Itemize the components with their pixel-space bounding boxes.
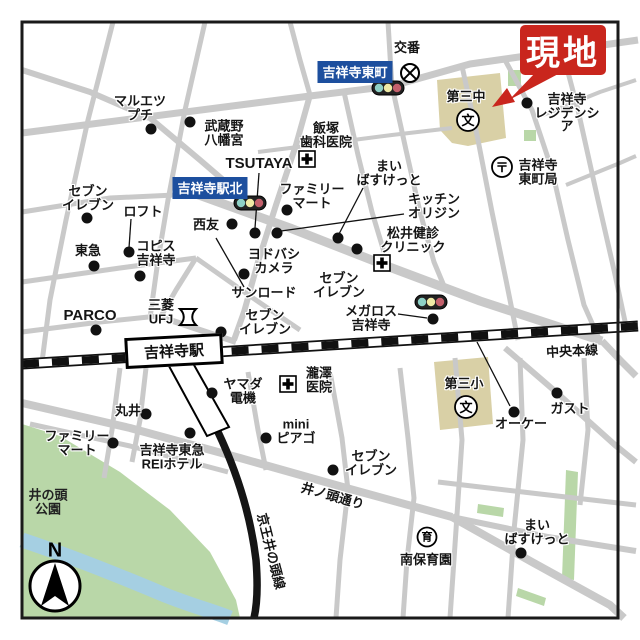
compass — [30, 561, 80, 611]
poi-dot — [141, 409, 152, 420]
poi-dot — [89, 261, 100, 272]
traffic-light-icon — [427, 298, 435, 306]
traffic-light-icon — [375, 84, 383, 92]
poi-dot — [509, 407, 520, 418]
poi-leader-line — [477, 342, 510, 406]
hospital-icon — [305, 154, 309, 165]
school-icon: 文 — [459, 400, 473, 415]
traffic-light-icon — [393, 84, 401, 92]
school-icon: 文 — [461, 113, 475, 128]
poi-dot — [146, 124, 157, 135]
hospital-icon — [286, 379, 290, 390]
poi-leader-line — [129, 219, 131, 248]
post-icon: 〒 — [495, 160, 508, 175]
poi-dot — [272, 228, 283, 239]
poi-leader-line — [398, 314, 427, 318]
poi-dot — [328, 465, 339, 476]
poi-dot — [333, 233, 344, 244]
bank-icon — [180, 309, 196, 325]
poi-leader-line — [339, 188, 363, 234]
site-arrow-icon — [492, 88, 515, 107]
poi-dot — [352, 244, 363, 255]
traffic-light-icon — [246, 199, 254, 207]
poi-dot — [282, 205, 293, 216]
hospital-icon — [380, 258, 384, 269]
poi-dot — [82, 213, 93, 224]
poi-dot — [185, 117, 196, 128]
poi-dot — [261, 433, 272, 444]
poi-dot — [91, 325, 102, 336]
map-overlay: 文〒文育 — [0, 0, 640, 640]
poi-dot — [250, 228, 261, 239]
traffic-light-icon — [436, 298, 444, 306]
poi-dot — [207, 388, 218, 399]
traffic-light-icon — [255, 199, 263, 207]
poi-dot — [124, 247, 135, 258]
poi-dot — [108, 438, 119, 449]
traffic-light-icon — [384, 84, 392, 92]
poi-dot — [227, 219, 238, 230]
poi-dot — [135, 271, 146, 282]
traffic-light-icon — [418, 298, 426, 306]
traffic-light-icon — [237, 199, 245, 207]
poi-dot — [185, 428, 196, 439]
poi-dot — [239, 269, 250, 280]
area-map: 文〒文育 マルエツ プチ武蔵野 八幡宮飯塚 歯科医院TSUTAYAファミリー マ… — [0, 0, 640, 640]
poi-dot — [552, 388, 563, 399]
poi-dot — [522, 98, 533, 109]
compass-north-label: N — [48, 540, 62, 563]
poi-dot — [428, 314, 439, 325]
nursery-icon: 育 — [422, 530, 433, 544]
poi-leader-line — [216, 238, 244, 287]
poi-dot — [516, 548, 527, 559]
station-name-box: 吉祥寺駅 — [124, 333, 224, 369]
site-callout-label: 現地 — [526, 26, 600, 75]
